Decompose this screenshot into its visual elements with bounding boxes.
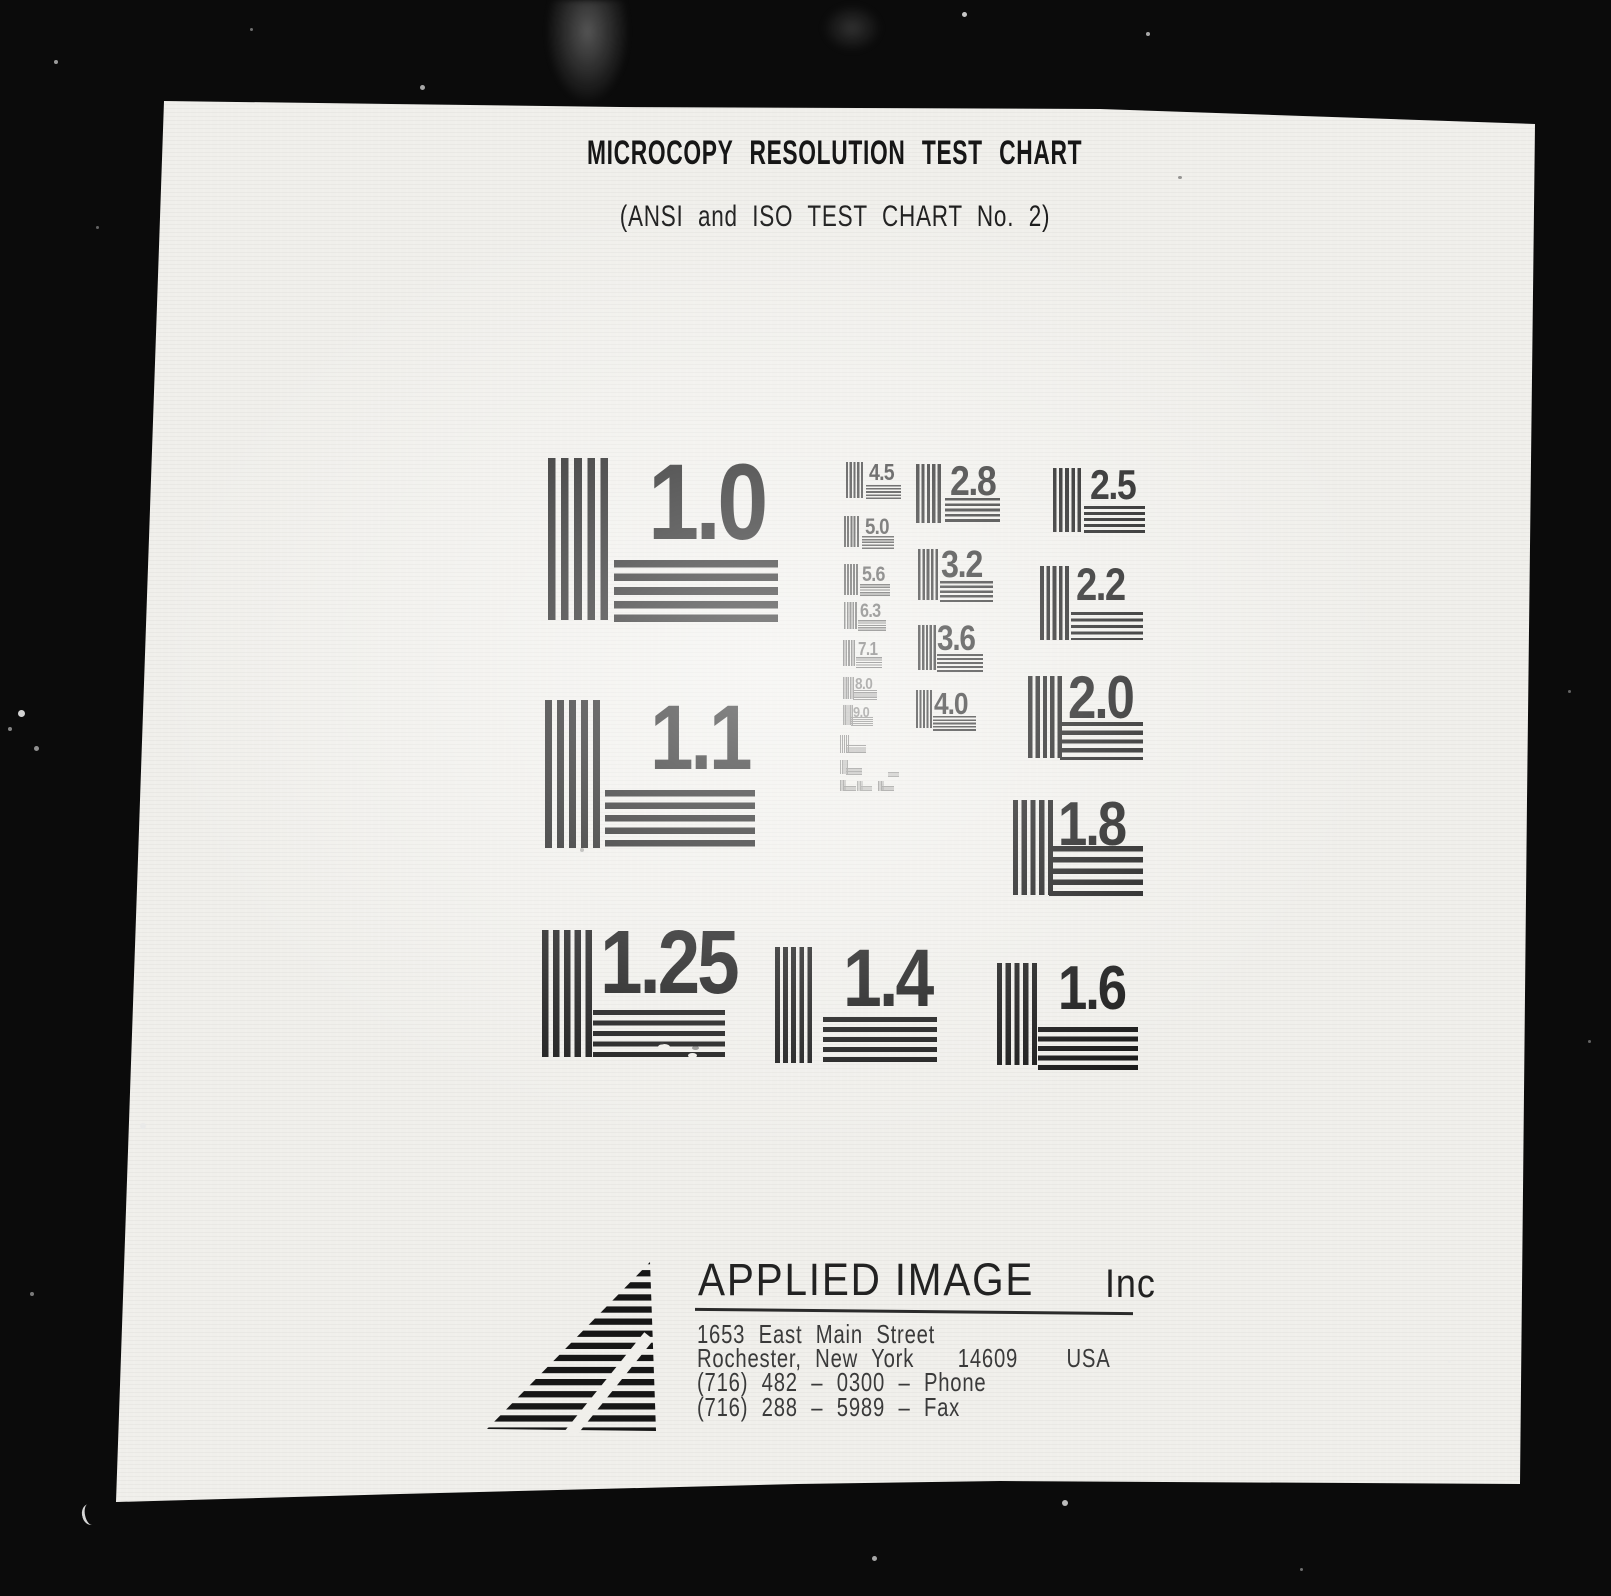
vertical-bars-block xyxy=(1040,566,1069,640)
scanned-photo-background: MICROCOPY RESOLUTION TEST CHART (ANSI an… xyxy=(0,0,1611,1596)
horizontal-bars-block xyxy=(1071,612,1143,640)
address-phone: (716) 482 – 0300 – Phone xyxy=(697,1370,1111,1394)
scan-light-streak xyxy=(545,0,630,105)
pattern-label: 1.4 xyxy=(843,938,932,1020)
vertical-bars-block xyxy=(846,462,863,498)
scan-speck xyxy=(140,1123,146,1129)
company-name: APPLIED IMAGE xyxy=(698,1257,1034,1302)
pattern-label: 2.2 xyxy=(1076,562,1125,607)
page-title: MICROCOPY RESOLUTION TEST CHART xyxy=(164,136,1506,170)
page-title-text: MICROCOPY RESOLUTION TEST CHART xyxy=(587,136,1082,170)
pattern-label: 6.3 xyxy=(860,602,881,621)
pattern-label: 8.0 xyxy=(855,677,872,693)
scan-speck xyxy=(1300,1568,1303,1571)
horizontal-bars-block xyxy=(851,717,873,726)
paper-damage-nick xyxy=(658,1044,670,1050)
vertical-bars-block xyxy=(857,781,863,791)
page-subtitle: (ANSI and ISO TEST CHART No. 2) xyxy=(164,202,1506,232)
horizontal-bars-block xyxy=(1060,722,1143,760)
scan-speck xyxy=(420,85,425,90)
horizontal-bars-block xyxy=(1084,506,1145,533)
scan-speck xyxy=(8,727,12,731)
scan-speck xyxy=(54,60,58,64)
test-chart-sheet: MICROCOPY RESOLUTION TEST CHART (ANSI an… xyxy=(0,0,1611,1596)
horizontal-bars-block xyxy=(823,1017,937,1062)
horizontal-bars-block xyxy=(846,768,862,775)
vertical-bars-block xyxy=(916,690,932,728)
paper-speck xyxy=(580,848,584,852)
horizontal-bars-block xyxy=(614,560,778,622)
vertical-bars-block xyxy=(542,930,592,1057)
scan-speck xyxy=(250,28,253,31)
vertical-bars-block xyxy=(918,625,936,670)
horizontal-bars-block xyxy=(844,786,856,791)
horizontal-bars-block xyxy=(945,498,1000,522)
vertical-bars-block xyxy=(840,735,849,753)
horizontal-bars-block xyxy=(853,690,877,700)
scan-speck xyxy=(1448,1360,1451,1363)
vertical-bars-block xyxy=(918,549,938,600)
horizontal-bars-block xyxy=(1049,846,1143,896)
scan-speck xyxy=(1146,32,1150,36)
horizontal-bars-block xyxy=(940,581,993,602)
vertical-bars-block xyxy=(775,947,812,1063)
horizontal-bars-block xyxy=(866,485,901,499)
horizontal-bars-block xyxy=(937,654,983,672)
scan-speck xyxy=(30,1292,34,1296)
vertical-bars-block xyxy=(548,458,608,620)
vertical-bars-block xyxy=(545,700,600,848)
applied-image-logo-icon xyxy=(480,1258,660,1433)
pattern-label: 9.0 xyxy=(853,705,869,720)
pattern-label: 1.6 xyxy=(1058,958,1125,1020)
scan-scratch-mark xyxy=(80,1503,100,1527)
horizontal-bars-block xyxy=(888,772,899,777)
pattern-label: 5.6 xyxy=(862,564,885,585)
vertical-bars-block xyxy=(843,677,854,699)
pattern-label: 4.0 xyxy=(934,688,967,719)
address-country: USA xyxy=(1066,1343,1110,1373)
vertical-bars-block xyxy=(843,640,855,666)
vertical-bars-block xyxy=(1013,800,1053,895)
horizontal-bars-block xyxy=(862,536,894,549)
scan-speck xyxy=(1568,690,1571,693)
scan-speck xyxy=(872,1556,877,1561)
vertical-bars-block xyxy=(843,705,853,725)
pattern-label: 2.5 xyxy=(1090,464,1135,506)
pattern-label: 1.8 xyxy=(1058,794,1125,856)
company-address-block: 1653 East Main Street Rochester, New Yor… xyxy=(697,1322,1111,1419)
horizontal-bars-block xyxy=(861,786,872,791)
pattern-label: 1.0 xyxy=(648,448,765,556)
scan-speck xyxy=(34,746,39,751)
scan-speck xyxy=(962,12,967,17)
pattern-label: 1.25 xyxy=(600,918,737,1008)
vertical-bars-block xyxy=(1053,468,1081,532)
horizontal-bars-block xyxy=(605,790,755,847)
pattern-label: 3.2 xyxy=(941,546,982,584)
scan-speck xyxy=(1062,1500,1068,1506)
scan-speck xyxy=(18,710,25,717)
vertical-bars-block xyxy=(840,760,848,774)
vertical-bars-block xyxy=(840,780,846,791)
vertical-bars-block xyxy=(1028,676,1062,758)
horizontal-bars-block xyxy=(593,1010,725,1057)
scan-speck xyxy=(96,226,99,229)
horizontal-bars-block xyxy=(933,716,976,731)
scan-light-blob xyxy=(822,4,882,52)
page-subtitle-text: (ANSI and ISO TEST CHART No. 2) xyxy=(620,202,1050,232)
pattern-label: 1.1 xyxy=(650,692,749,784)
paper-damage-nick xyxy=(688,1053,697,1058)
logo-underline xyxy=(695,1308,1133,1315)
vertical-bars-block xyxy=(844,516,859,547)
scan-speck xyxy=(1588,1040,1591,1043)
paper-speck xyxy=(660,1042,664,1045)
vertical-bars-block xyxy=(844,564,858,595)
vertical-bars-block xyxy=(878,781,884,791)
pattern-label: 2.8 xyxy=(950,460,995,502)
horizontal-bars-block xyxy=(882,786,894,791)
paper-speck xyxy=(1178,176,1182,179)
pattern-label: 3.6 xyxy=(937,621,975,656)
paper-speck xyxy=(692,1046,699,1050)
horizontal-bars-block xyxy=(860,584,890,596)
horizontal-bars-block xyxy=(847,745,866,753)
address-fax: (716) 288 – 5989 – Fax xyxy=(697,1395,1111,1419)
horizontal-bars-block xyxy=(1038,1027,1138,1070)
horizontal-bars-block xyxy=(858,620,886,631)
horizontal-bars-block xyxy=(856,657,882,668)
pattern-label: 5.0 xyxy=(865,516,889,538)
pattern-label: 2.0 xyxy=(1068,668,1133,728)
pattern-label: 7.1 xyxy=(858,640,877,658)
vertical-bars-block xyxy=(844,602,857,629)
vertical-bars-block xyxy=(997,963,1037,1065)
pattern-label: 4.5 xyxy=(869,461,894,484)
company-suffix: Inc xyxy=(1105,1264,1156,1304)
vertical-bars-block xyxy=(916,464,941,523)
